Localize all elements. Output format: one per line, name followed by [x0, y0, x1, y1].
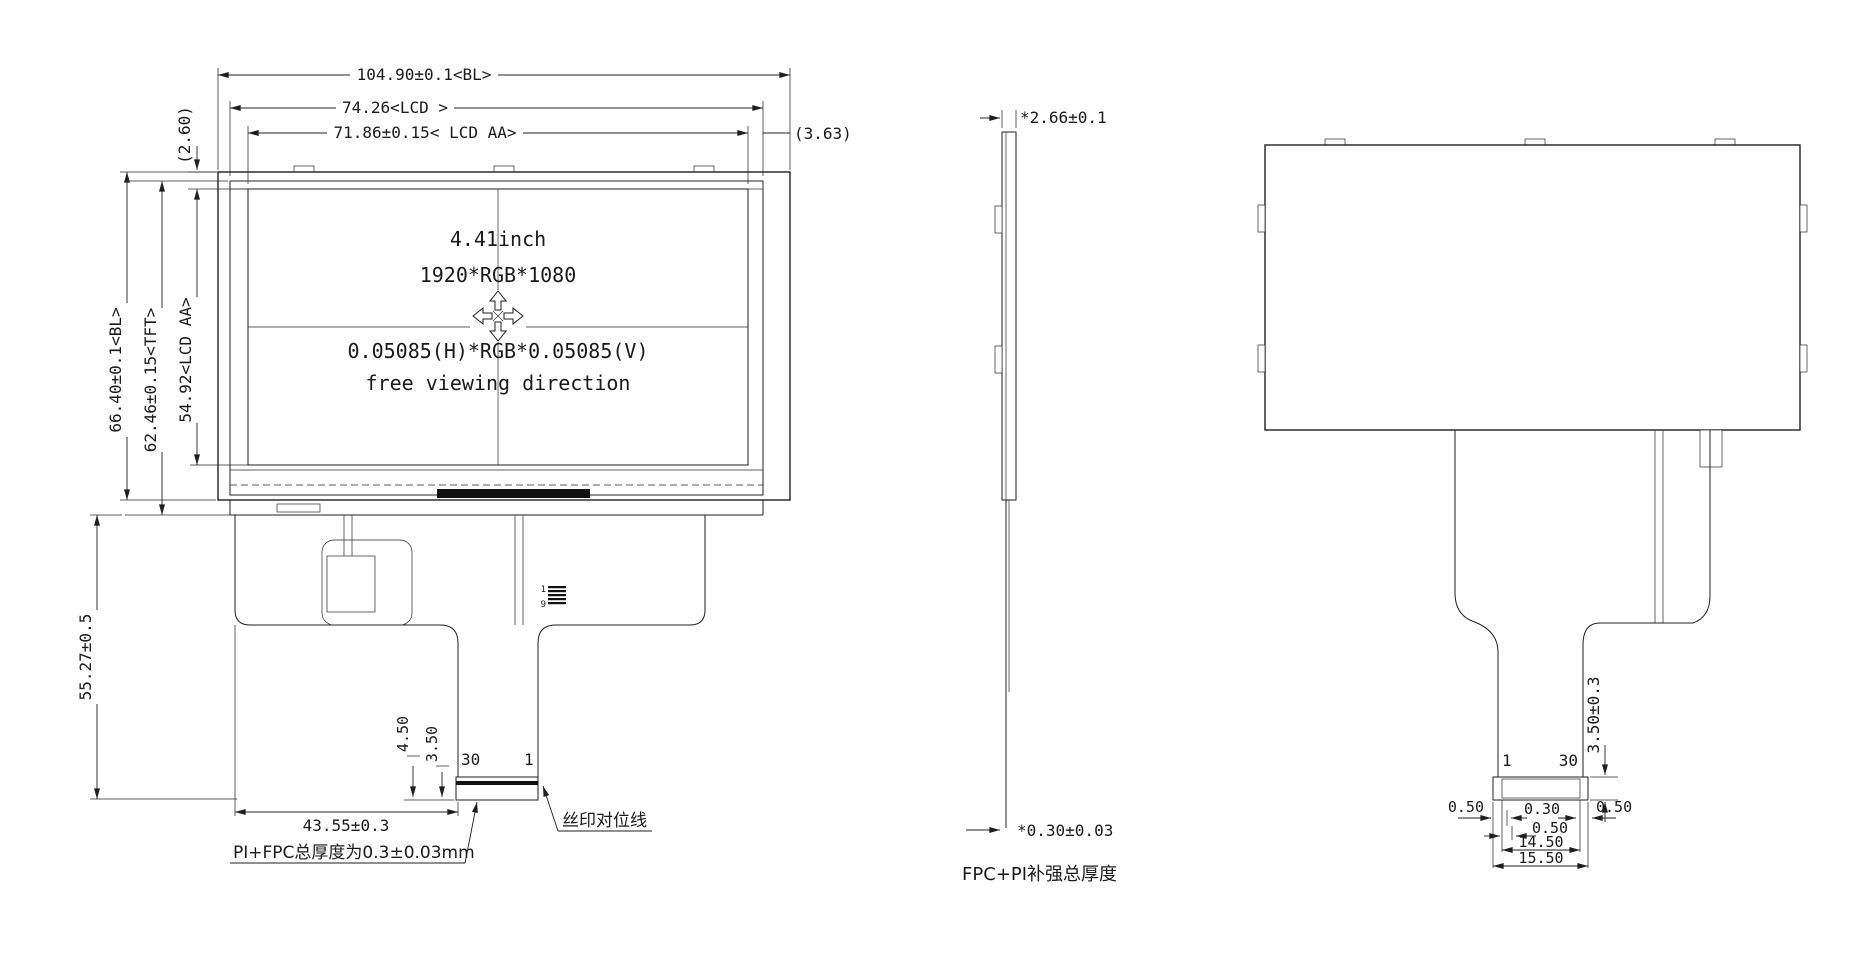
fpc-fold-tab	[1700, 430, 1722, 467]
pad-first-label: 1	[541, 585, 546, 595]
dim-total-thickness-label: *2.66±0.1	[1020, 108, 1107, 127]
pixel-pitch-label: 0.05085(H)*RGB*0.05085(V)	[347, 339, 648, 363]
backlight-outline	[218, 172, 790, 500]
top-tab	[1325, 139, 1345, 145]
dim-pin-width-label: 0.30	[1524, 800, 1560, 818]
dim-bl-width-label: 104.90±0.1<BL>	[357, 65, 492, 84]
dim-top-gap-label: (2.60)	[175, 106, 194, 164]
front-view: 4.41inch 1920*RGB*1080 0.05085(H)*RGB*0.…	[76, 65, 852, 863]
dim-bl-height-label: 66.40±0.1<BL>	[106, 307, 125, 432]
dim-right-gap: (3.63)	[763, 124, 852, 143]
dim-fpc-length-label: 55.27±0.5	[76, 614, 95, 701]
dim-tail-offset-label: 43.55±0.3	[303, 816, 390, 835]
note-silkscreen-label: 丝印对位线	[562, 811, 647, 831]
top-tab	[1525, 139, 1545, 145]
side-profile	[1002, 132, 1016, 500]
side-tab	[995, 206, 1002, 233]
screen-resolution-label: 1920*RGB*1080	[420, 263, 577, 287]
dim-total-thickness: *2.66±0.1	[980, 108, 1107, 128]
pin-label-30: 30	[1559, 751, 1578, 770]
back-bottom-dims: 0.50 0.30 0.50 0.50 14.50 1	[1448, 798, 1632, 868]
dim-connector-width-label: 15.50	[1518, 849, 1563, 867]
fpc-connector-band	[456, 781, 538, 785]
dim-pad-b-label: 3.50	[423, 726, 441, 762]
front-fpc: 1 9 30 1	[235, 515, 705, 800]
note-fpc-thickness-label: PI+FPC总厚度为0.3±0.03mm	[233, 843, 475, 863]
side-view: *2.66±0.1 *0.30±0.03 FPC+PI补强总厚度	[962, 108, 1117, 885]
stiffener-hatch	[327, 556, 375, 612]
dim-aa-height-label: 54.92<LCD AA>	[176, 297, 195, 422]
top-tab	[1715, 139, 1735, 145]
top-tab	[694, 166, 714, 172]
ledge-tab	[277, 504, 320, 512]
dim-lcd-width-label: 74.26<LCD >	[342, 98, 448, 117]
test-pads: 1 9	[541, 585, 566, 610]
dim-margin-right: 0.50	[1592, 798, 1632, 818]
dim-pad-a-label: 4.50	[394, 716, 412, 752]
lcd-outline-drawing-page: 4.41inch 1920*RGB*1080 0.05085(H)*RGB*0.…	[0, 0, 1862, 956]
dim-pin-width: 0.30	[1511, 800, 1576, 818]
dim-margin-left-label: 0.50	[1448, 798, 1484, 816]
dim-margin-left: 0.50	[1448, 798, 1491, 818]
dim-tft-height-label: 62.46±0.15<TFT>	[141, 308, 160, 453]
dim-fpc-thickness: *0.30±0.03	[966, 821, 1113, 840]
driver-ic-bar	[437, 489, 590, 498]
dim-pad-b: 3.50	[423, 726, 449, 797]
dim-fpc-length: 55.27±0.5	[76, 515, 237, 799]
dim-right-gap-label: (3.63)	[794, 124, 852, 143]
dim-aa-width-label: 71.86±0.15< LCD AA>	[333, 123, 516, 142]
dim-bl-height: 66.40±0.1<BL>	[106, 172, 216, 500]
pad-last-label: 9	[541, 600, 546, 610]
fpc-connector	[456, 777, 538, 800]
back-fpc-left	[1455, 430, 1498, 777]
pin-label-1: 1	[1502, 751, 1512, 770]
side-tab	[1800, 205, 1807, 232]
screen-size-label: 4.41inch	[450, 227, 546, 251]
dim-bl-width: 104.90±0.1<BL>	[218, 65, 790, 170]
side-fpc-note-label: FPC+PI补强总厚度	[962, 864, 1117, 885]
viewing-direction-label: free viewing direction	[366, 371, 631, 395]
side-tab	[995, 346, 1002, 373]
dim-margin-right-label: 0.50	[1596, 798, 1632, 816]
pin-label-30: 30	[461, 750, 480, 769]
technical-drawing-canvas: 4.41inch 1920*RGB*1080 0.05085(H)*RGB*0.…	[0, 0, 1862, 956]
side-tab	[1258, 345, 1265, 372]
pin-label-1: 1	[524, 750, 534, 769]
side-tab	[1258, 205, 1265, 232]
fpc-outline-right	[538, 515, 705, 777]
back-panel-outline	[1265, 145, 1800, 430]
dim-fpc-thickness-label: *0.30±0.03	[1017, 821, 1113, 840]
back-connector	[1493, 777, 1588, 800]
side-tab	[1800, 345, 1807, 372]
note-silkscreen: 丝印对位线	[543, 786, 652, 831]
top-tab	[294, 166, 314, 172]
back-fpc: 1 30	[1455, 430, 1710, 800]
back-view: 1 30 3.50±0.3 0.50 0.30	[1258, 139, 1807, 868]
dim-connector-width: 15.50	[1493, 849, 1588, 867]
dim-stiffener-label: 3.50±0.3	[1584, 676, 1603, 753]
top-tab	[494, 166, 514, 172]
